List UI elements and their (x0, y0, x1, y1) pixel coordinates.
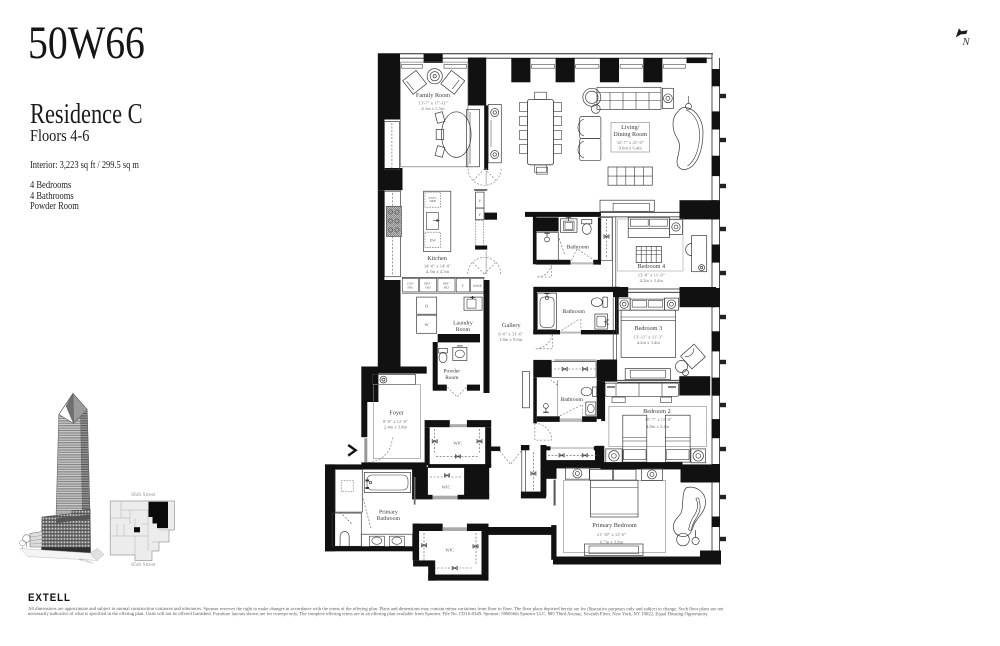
svg-text:66th Street: 66th Street (131, 492, 156, 498)
svg-text:65th Street: 65th Street (131, 562, 156, 568)
